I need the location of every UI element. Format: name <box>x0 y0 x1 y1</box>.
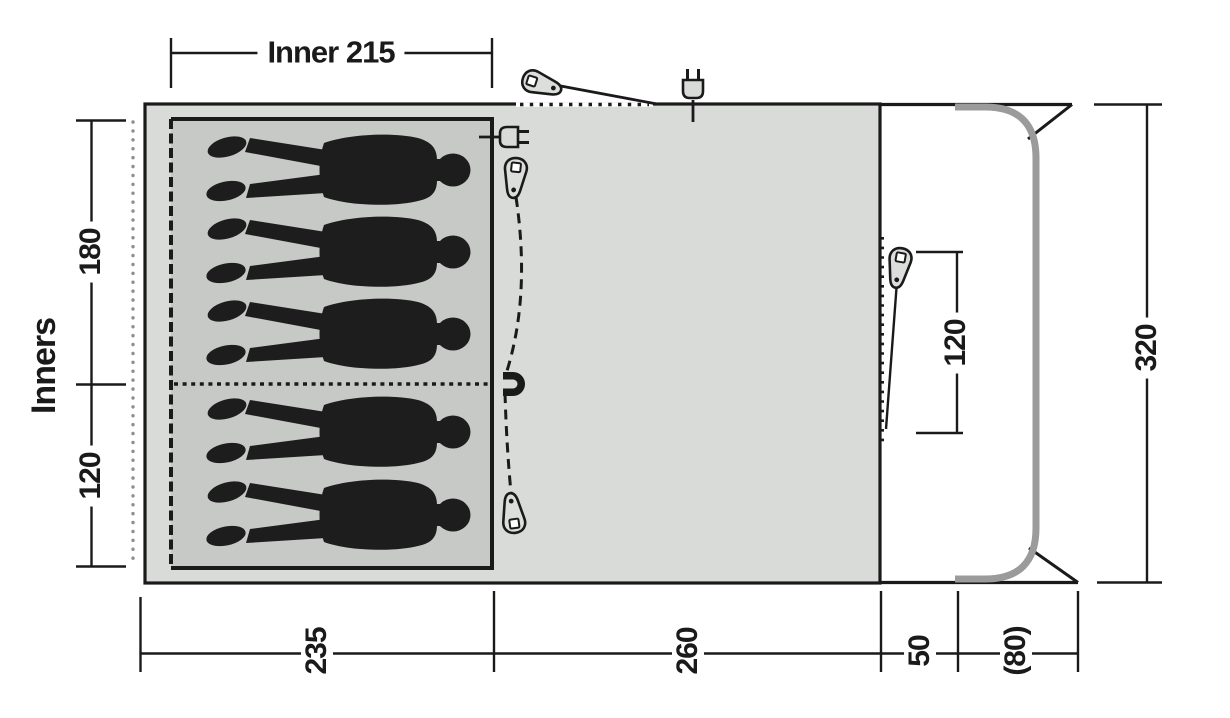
side-door <box>883 237 914 447</box>
front-door <box>516 68 657 105</box>
zipper-pull-icon <box>520 68 565 101</box>
inner-width-label: Inner 215 <box>257 36 404 69</box>
tent-floorplan-diagram: Inner 215 Inners 180 120 320 120 235 260… <box>0 0 1230 718</box>
bottom-front-label: 50 <box>904 628 936 673</box>
zipper-pull-icon <box>885 246 913 289</box>
bottom-canopy-label: (80) <box>1000 619 1032 682</box>
floorplan-art <box>0 0 1230 718</box>
bottom-inner-label: 235 <box>301 620 333 681</box>
power-plug-icon <box>683 69 703 98</box>
depth-bottom-label: 120 <box>75 445 107 506</box>
depth-top-label: 180 <box>75 221 107 282</box>
total-depth-label: 320 <box>1131 317 1163 378</box>
inners-label: Inners <box>26 311 62 421</box>
bottom-living-label: 260 <box>672 620 704 681</box>
side-door-label: 120 <box>940 312 972 373</box>
canopy-outline <box>880 105 1078 583</box>
